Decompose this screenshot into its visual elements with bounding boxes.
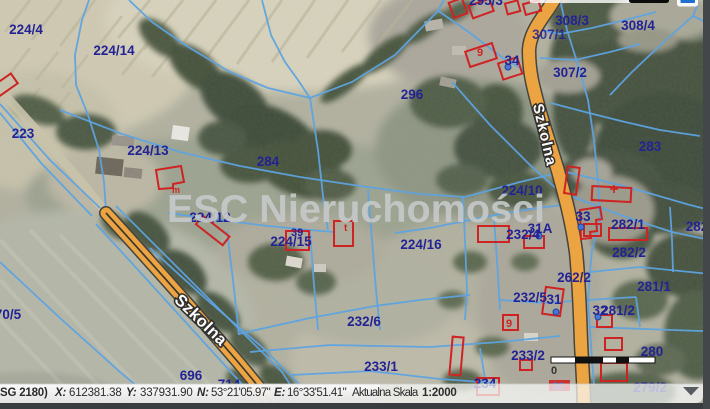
svg-text:SG 2180): SG 2180): [0, 387, 48, 399]
svg-text:N:: N:: [197, 387, 209, 399]
svg-text:E:: E:: [274, 387, 285, 399]
svg-text:Y:: Y:: [126, 387, 137, 399]
svg-text:0: 0: [551, 365, 557, 377]
svg-text:Aktualna Skala: Aktualna Skala: [352, 387, 419, 399]
svg-text:X:: X:: [54, 387, 66, 399]
svg-text:612381.38: 612381.38: [69, 387, 122, 399]
svg-text:53°21'05.97": 53°21'05.97": [211, 387, 271, 399]
svg-text:337931.90: 337931.90: [140, 387, 193, 399]
svg-text:1:2000: 1:2000: [422, 387, 457, 399]
svg-text:m: m: [643, 366, 653, 378]
svg-text:16°33'51.41": 16°33'51.41": [287, 387, 347, 399]
